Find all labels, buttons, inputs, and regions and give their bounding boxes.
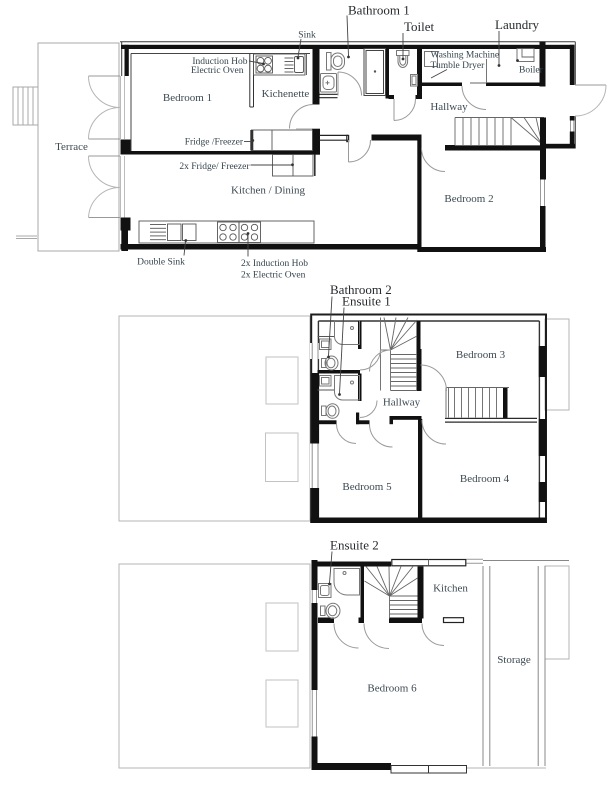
svg-text:Bedroom 5: Bedroom 5 xyxy=(342,481,392,493)
svg-text:Laundry: Laundry xyxy=(495,17,540,32)
svg-text:Electric Oven: Electric Oven xyxy=(191,66,244,76)
svg-text:Storage: Storage xyxy=(497,654,531,666)
svg-text:Terrace: Terrace xyxy=(55,141,88,153)
svg-text:Washing Machine: Washing Machine xyxy=(431,51,500,61)
svg-text:Kitchen / Dining: Kitchen / Dining xyxy=(231,185,305,197)
svg-text:Ensuite 2: Ensuite 2 xyxy=(330,538,379,553)
svg-text:Bedroom 4: Bedroom 4 xyxy=(460,473,510,485)
svg-text:2x Fridge/ Freezer: 2x Fridge/ Freezer xyxy=(179,162,250,172)
svg-text:Bedroom 2: Bedroom 2 xyxy=(444,193,493,205)
svg-text:Double Sink: Double Sink xyxy=(137,258,185,268)
svg-text:Toilet: Toilet xyxy=(404,19,435,34)
svg-text:Bedroom 1: Bedroom 1 xyxy=(163,92,212,104)
svg-text:Sink: Sink xyxy=(298,31,316,41)
svg-text:Bedroom 3: Bedroom 3 xyxy=(456,349,506,361)
svg-text:2x Electric Oven: 2x Electric Oven xyxy=(241,271,306,281)
svg-text:Hallway: Hallway xyxy=(430,101,468,113)
svg-text:Tumble Dryer: Tumble Dryer xyxy=(431,61,486,71)
svg-text:Ensuite 1: Ensuite 1 xyxy=(342,294,391,309)
svg-text:Kichenette: Kichenette xyxy=(262,88,310,100)
svg-text:Boiler: Boiler xyxy=(519,66,544,76)
svg-text:Bathroom 1: Bathroom 1 xyxy=(348,3,410,18)
svg-text:Bedroom 6: Bedroom 6 xyxy=(367,683,417,695)
svg-text:Kitchen: Kitchen xyxy=(433,583,468,595)
svg-text:2x Induction Hob: 2x Induction Hob xyxy=(241,259,308,269)
svg-text:Fridge /Freezer: Fridge /Freezer xyxy=(185,138,244,148)
svg-text:Hallway: Hallway xyxy=(383,397,421,409)
